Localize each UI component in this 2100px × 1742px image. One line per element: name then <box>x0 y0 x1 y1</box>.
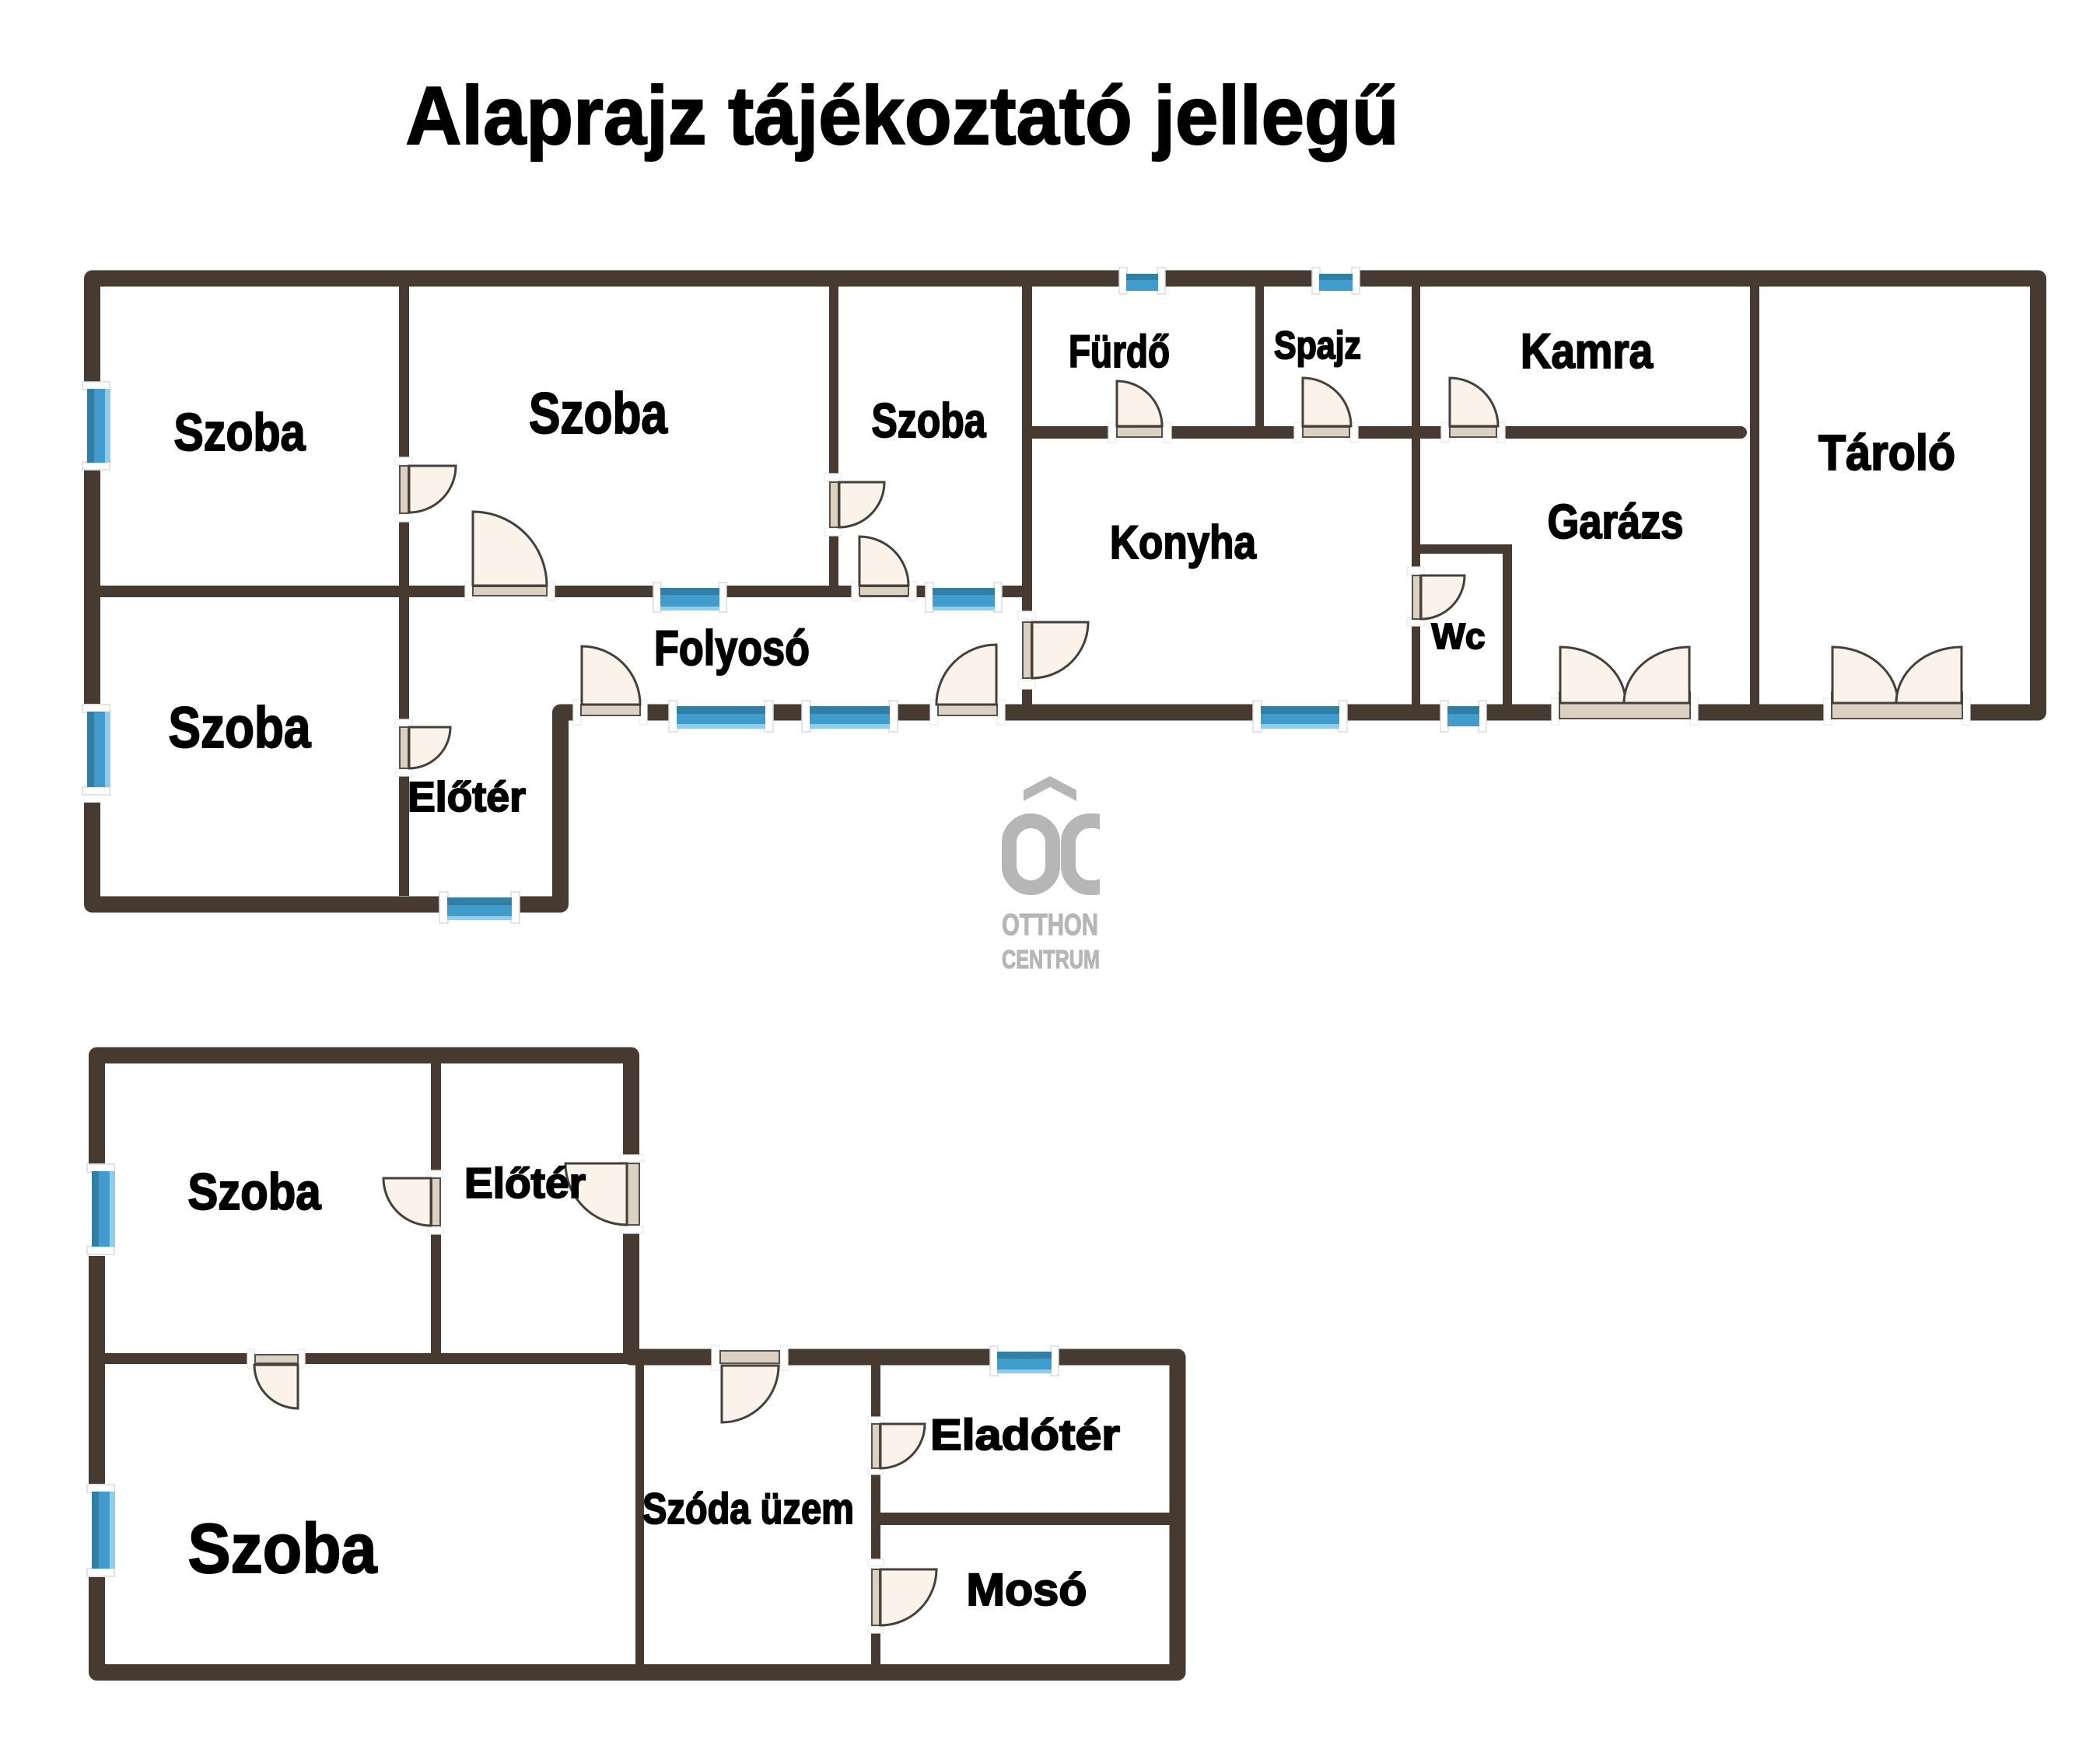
svg-text:Folyosó: Folyosó <box>654 621 810 676</box>
svg-text:Mosó: Mosó <box>967 1565 1087 1615</box>
svg-text:Előtér: Előtér <box>408 774 526 820</box>
svg-text:Szoba: Szoba <box>529 381 668 446</box>
svg-text:Szoba: Szoba <box>188 1163 322 1220</box>
svg-text:Előtér: Előtér <box>464 1159 586 1207</box>
svg-text:Szóda üzem: Szóda üzem <box>642 1484 854 1533</box>
svg-text:Wc: Wc <box>1432 616 1486 656</box>
svg-text:Konyha: Konyha <box>1110 516 1257 568</box>
svg-text:Garázs: Garázs <box>1548 495 1684 549</box>
svg-text:Szoba: Szoba <box>174 403 306 462</box>
svg-text:Alaprajz tájékoztató jellegű: Alaprajz tájékoztató jellegű <box>406 70 1399 162</box>
svg-text:Szoba: Szoba <box>169 695 312 760</box>
svg-text:Spajz: Spajz <box>1274 324 1361 367</box>
svg-text:Eladótér: Eladótér <box>930 1410 1120 1459</box>
svg-text:Kamra: Kamra <box>1521 324 1654 379</box>
svg-text:Fürdő: Fürdő <box>1069 327 1170 377</box>
svg-text:Tároló: Tároló <box>1818 425 1955 481</box>
svg-text:Szoba: Szoba <box>188 1510 378 1588</box>
svg-text:CENTRUM: CENTRUM <box>1002 945 1100 974</box>
svg-text:OTTHON: OTTHON <box>1002 908 1098 942</box>
svg-text:Szoba: Szoba <box>872 394 986 448</box>
